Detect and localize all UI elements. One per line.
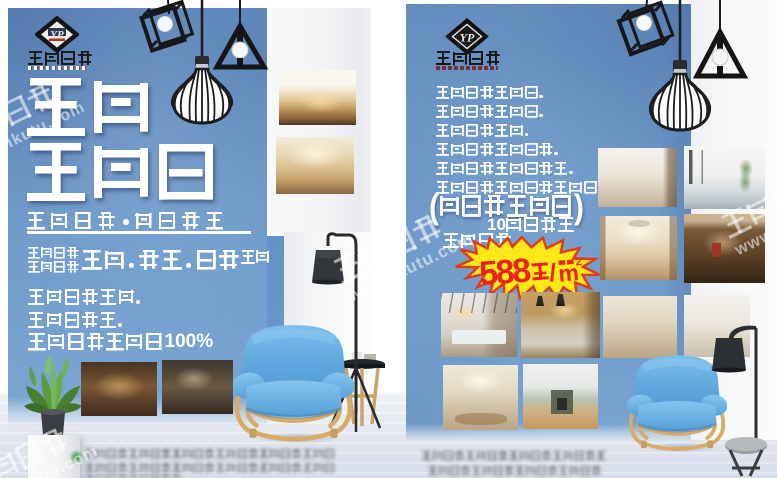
svg-text:YP: YP (460, 31, 475, 45)
svg-text:2: 2 (575, 256, 582, 268)
svg-text:588: 588 (478, 252, 533, 294)
